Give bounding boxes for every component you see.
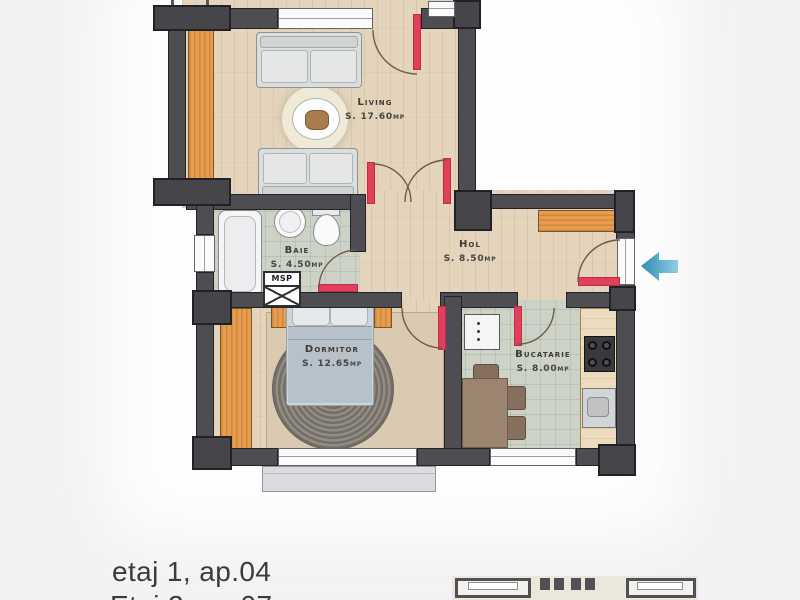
room-label-dormitor: Dormitor S. 12.65mp [302, 343, 362, 370]
room-label-living: Living S. 17.60mp [345, 96, 405, 123]
room-area: S. 4.50mp [271, 259, 324, 272]
room-name: Bucatarie [515, 348, 571, 363]
kitchen-counter [580, 308, 620, 450]
stove [584, 336, 615, 372]
overview-thumbnail-window [637, 582, 683, 590]
overview-thumbnail-pillar [540, 578, 550, 590]
pilaster [453, 0, 481, 29]
pilaster [153, 5, 231, 31]
fridge [464, 314, 500, 350]
floorplan-page: MSP [0, 0, 800, 600]
room-area: S. 12.65mp [302, 358, 362, 371]
bathtub [218, 210, 262, 298]
wall-segment [616, 308, 635, 450]
table-decoration [305, 110, 329, 130]
wardrobe [220, 308, 252, 450]
door-leaf [438, 306, 446, 350]
nightstand [374, 306, 392, 328]
washing-machine-box: MSP [263, 271, 301, 307]
kitchen-sink [582, 388, 616, 428]
pilaster [614, 190, 635, 233]
window-sill [262, 466, 436, 492]
door-leaf [413, 14, 421, 70]
caption-line1: etaj 1, ap.04 [112, 556, 271, 588]
pilaster [192, 436, 232, 470]
room-area: S. 17.60mp [345, 111, 405, 124]
wall-segment [458, 0, 476, 196]
wall-segment [444, 296, 462, 450]
kitchen-table [462, 378, 508, 448]
window [194, 235, 215, 272]
sofa [256, 32, 362, 88]
room-name: Hol [444, 238, 497, 253]
chair [506, 416, 526, 440]
overview-thumbnail-window [468, 582, 518, 590]
pilaster [598, 444, 636, 476]
toilet [313, 214, 340, 246]
door-leaf [318, 284, 358, 292]
door-leaf [578, 277, 620, 286]
wall-segment [350, 194, 366, 252]
pilaster [454, 190, 492, 231]
room-area: S. 8.00mp [515, 363, 571, 376]
chair [506, 386, 526, 410]
entrance-arrow-icon [640, 249, 680, 285]
hallway-cabinet [538, 210, 616, 232]
room-name: Baie [271, 244, 324, 259]
window [428, 1, 455, 17]
wall-segment [490, 194, 618, 209]
door-leaf [443, 158, 451, 204]
washing-machine-x-mark [265, 287, 299, 305]
caption-line2: Etaj 2, ap.07 [110, 590, 272, 600]
room-label-baie: Baie S. 4.50mp [271, 244, 324, 271]
wall-segment [168, 5, 186, 206]
pilaster [153, 178, 231, 206]
wardrobe [188, 28, 214, 192]
room-area: S. 8.50mp [444, 253, 497, 266]
overview-thumbnail-pillar [585, 578, 595, 590]
door-leaf [367, 162, 375, 204]
room-name: Living [345, 96, 405, 111]
overview-thumbnail-pillar [571, 578, 581, 590]
room-name: Dormitor [302, 343, 362, 358]
window [278, 448, 417, 466]
pilaster [609, 286, 636, 311]
door-leaf [514, 306, 522, 346]
room-label-bucatarie: Bucatarie S. 8.00mp [515, 348, 571, 375]
nightstand [271, 306, 287, 328]
washbasin [274, 206, 306, 238]
overview-thumbnail-pillar [554, 578, 564, 590]
window [278, 8, 373, 29]
pilaster [192, 290, 232, 325]
wall-segment [417, 448, 490, 466]
washing-machine-label: MSP [265, 273, 299, 287]
window [490, 448, 576, 466]
room-label-hol: Hol S. 8.50mp [444, 238, 497, 265]
